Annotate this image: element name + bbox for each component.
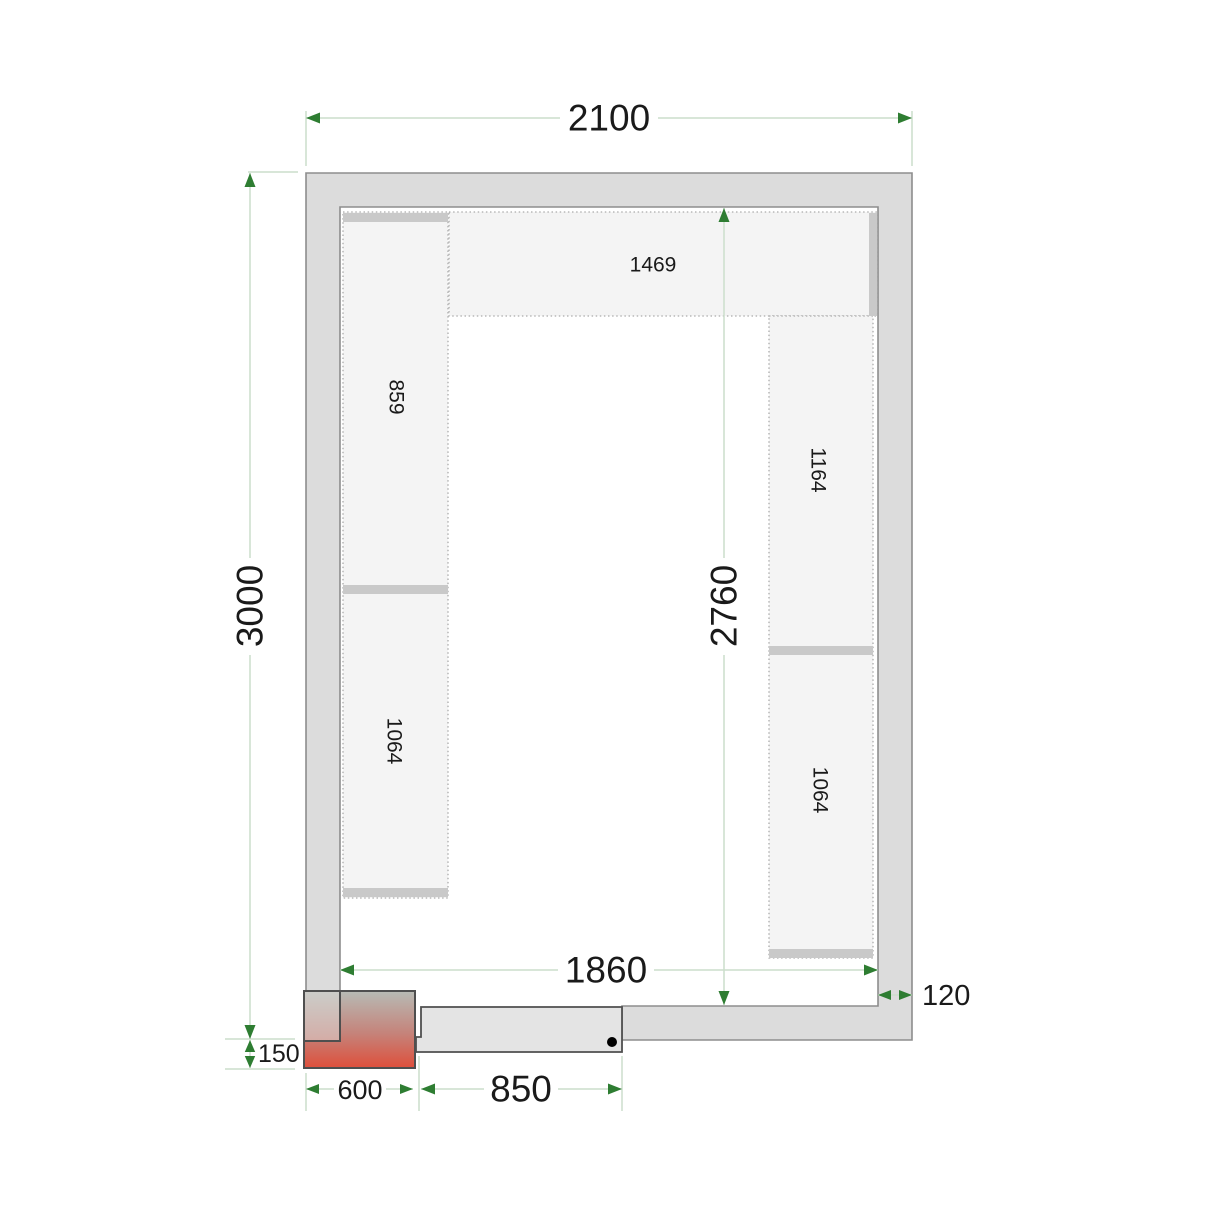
shelf-support-bar [343, 585, 448, 594]
dim-label-outer-height: 3000 [230, 565, 271, 647]
shelf-support-bar [869, 213, 877, 316]
dim-label-inner-width: 1860 [565, 950, 647, 991]
dim-label-outer-width: 2100 [568, 98, 650, 139]
door-hinge-dot [607, 1037, 617, 1047]
right-shelf-run [769, 316, 873, 958]
arrowhead-down [245, 1025, 256, 1039]
refrigeration-unit [304, 991, 415, 1068]
cold-room-plan: 2100 3000 2760 1860 120 150 [0, 0, 1214, 1214]
dim-outer-width: 2100 [306, 96, 912, 166]
arrowhead-down [245, 1056, 255, 1068]
shelf-label-top: 1469 [630, 254, 677, 277]
dim-label-door-opening: 850 [490, 1069, 552, 1110]
dim-door-opening: 850 [421, 1056, 622, 1111]
arrowhead-right [608, 1084, 622, 1095]
shelf-support-bar [343, 213, 448, 222]
arrowhead-right [864, 965, 878, 976]
left-shelf-run [343, 212, 448, 898]
door-leaf [416, 1007, 622, 1052]
dim-label-unit-offset: 150 [258, 1040, 300, 1068]
shelf-support-bar [769, 949, 873, 958]
shelf-support-bar [343, 888, 448, 897]
arrowhead-right [898, 113, 912, 124]
shelf-support-bar [769, 646, 873, 655]
shelf-labels: 1469 859 1064 1164 1064 [383, 254, 832, 814]
arrowhead-up [245, 1040, 255, 1052]
dim-inner-height: 2760 [702, 208, 746, 1005]
wall-under-unit [305, 992, 340, 1041]
shelf-label-left-upper: 859 [385, 379, 408, 414]
arrowhead-right [400, 1084, 413, 1094]
arrowhead-left [306, 113, 320, 124]
shelf-label-right-upper: 1164 [807, 447, 830, 492]
arrowhead-left [421, 1084, 435, 1095]
door [416, 1007, 622, 1052]
shelf-label-right-lower: 1064 [809, 767, 832, 814]
dim-outer-height: 3000 [225, 172, 298, 1039]
arrowhead-up [245, 173, 256, 187]
shelf-label-left-lower: 1064 [383, 718, 406, 765]
dim-label-wall-thickness: 120 [922, 980, 970, 1012]
dim-unit-offset: 150 [225, 1040, 300, 1069]
shelving [343, 212, 877, 958]
arrowhead-down [719, 991, 730, 1005]
arrowhead-left [340, 965, 354, 976]
dim-label-inner-height: 2760 [704, 565, 745, 647]
arrowhead-left [306, 1084, 319, 1094]
dim-label-unit-width: 600 [337, 1075, 382, 1105]
